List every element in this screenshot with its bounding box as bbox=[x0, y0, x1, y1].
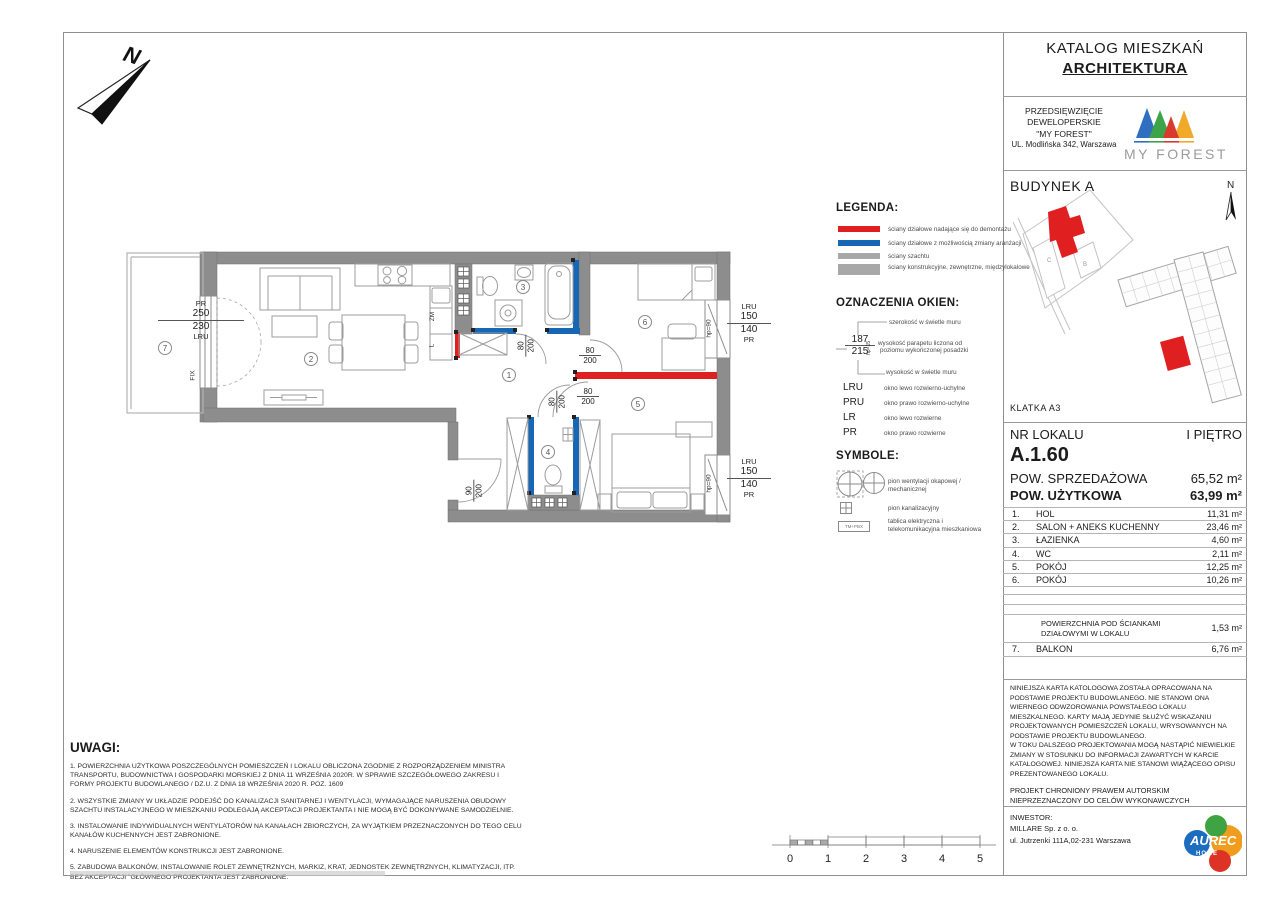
win5-height: 140 bbox=[727, 479, 771, 491]
abbr-lru: LRU bbox=[843, 382, 863, 393]
site-letter-c: C bbox=[1047, 258, 1052, 264]
window-sill-label2: poziomu wykończonej posadzki bbox=[880, 347, 968, 355]
room-number-1: 1 bbox=[502, 368, 516, 382]
usable-area-value: 63,99 m² bbox=[1160, 488, 1242, 503]
window-label-room6: LRU 150 140 PR bbox=[727, 302, 771, 344]
legend-swatch-red bbox=[838, 226, 880, 232]
aurec-logo-text: AUREC bbox=[1189, 833, 1237, 848]
sewage-symbol-label: pion kanalizacyjny bbox=[888, 505, 939, 513]
legend-title: LEGENDA: bbox=[836, 202, 898, 214]
door-dim-entrance: 90200 bbox=[464, 478, 483, 504]
divider-2 bbox=[1003, 170, 1247, 171]
site-north-letter: N bbox=[1227, 180, 1234, 191]
abbr-lr-desc: okno lewo rozwierne bbox=[884, 415, 941, 422]
sales-area-label: POW. SPRZEDAŻOWA bbox=[1010, 471, 1147, 486]
legend-swatch-shaft bbox=[838, 253, 880, 259]
developer-block: PRZEDSIĘWZIĘCIE DEWELOPERSKIE "MY FOREST… bbox=[1008, 106, 1120, 151]
sales-area-value: 65,52 m² bbox=[1160, 471, 1242, 486]
hp90-label-bottom: hp=90 bbox=[706, 474, 713, 492]
legend-swatch-structural bbox=[838, 264, 880, 275]
hp90-label-top: hp=90 bbox=[706, 319, 713, 337]
abbr-pru-desc: okno prawo rozwierno-uchylne bbox=[884, 400, 969, 407]
balcony-row: 7.BALKON6,76 m² bbox=[1003, 642, 1247, 656]
room-number-7: 7 bbox=[158, 341, 172, 355]
abbr-lr: LR bbox=[843, 412, 856, 423]
catalog-title: KATALOG MIESZKAŃ bbox=[1003, 40, 1247, 57]
uwagi-note-3: 3. INSTALOWANIE INDYWIDUALNYCH WENTYLATO… bbox=[70, 822, 525, 840]
site-letter-b: B bbox=[1083, 262, 1087, 268]
copyright: PROJEKT CHRONIONY PRAWEM AUTORSKIM NIEPR… bbox=[1010, 786, 1190, 806]
win6-type-bottom: PR bbox=[727, 335, 771, 344]
table-row: 1.HOL11,31 m² bbox=[1003, 507, 1247, 520]
door-dim-room5: 80200 bbox=[575, 387, 601, 406]
empty-row bbox=[1003, 594, 1247, 604]
abbr-pr: PR bbox=[843, 427, 857, 438]
win5-type-top: LRU bbox=[727, 457, 771, 466]
board-symbol-label: tablica elektryczna i telekomunikacyjna … bbox=[888, 518, 998, 534]
door-dim-bath: 80200 bbox=[516, 333, 535, 359]
empty-row bbox=[1003, 604, 1247, 614]
legend-swatch-blue bbox=[838, 240, 880, 246]
windows-legend-title: OZNACZENIA OKIEN: bbox=[836, 297, 960, 309]
scale-2: 2 bbox=[863, 853, 869, 865]
divider-1 bbox=[1003, 96, 1247, 97]
aurec-logo-home: HOME bbox=[1196, 851, 1218, 857]
legend-item-shaft: ściany szachtu bbox=[838, 253, 929, 261]
legend-item-blue: ściany działowe z możliwością zmiany ara… bbox=[838, 240, 1021, 248]
left-window-type-top: PR bbox=[158, 299, 244, 308]
unit-floor: I PIĘTRO bbox=[1130, 427, 1242, 442]
disclaimer: NINIEJSZA KARTA KATOLOGOWA ZOSTAŁA OPRAC… bbox=[1010, 684, 1242, 779]
door-dim-room6: 80200 bbox=[577, 346, 603, 365]
scale-1: 1 bbox=[825, 853, 831, 865]
dishwasher-label: ZM bbox=[429, 312, 436, 321]
table-row: 3.ŁAZIENKA4,60 m² bbox=[1003, 533, 1247, 546]
scale-4: 4 bbox=[939, 853, 945, 865]
my-forest-logo: MY FOREST bbox=[1122, 102, 1240, 164]
abbr-lru-desc: okno lewo rozwierno-uchylne bbox=[884, 385, 965, 392]
legend-item-structural: ściany konstrukcyjne, zewnętrzne, między… bbox=[838, 264, 1030, 275]
uwagi-note-4: 4. NARUSZENIE ELEMENTÓW KONSTRUKCJI JEST… bbox=[70, 847, 525, 856]
unit-number: A.1.60 bbox=[1010, 444, 1069, 467]
uwagi-notes: 1. POWIERZCHNIA UŻYTKOWA POSZCZEGÓLNYCH … bbox=[70, 762, 525, 889]
scale-0: 0 bbox=[787, 853, 793, 865]
empty-row bbox=[1003, 586, 1247, 594]
electric-board-icon: TM+PBX bbox=[838, 521, 870, 532]
aurec-home-logo: AUREC HOME bbox=[1182, 814, 1242, 872]
compass: N bbox=[72, 34, 192, 134]
vent-symbol-label: pion wentylacji okapowej / mechanicznej bbox=[888, 478, 988, 494]
catalog-subtitle: ARCHITEKTURA bbox=[1003, 60, 1247, 77]
room-number-4: 4 bbox=[541, 445, 555, 459]
uwagi-title: UWAGI: bbox=[70, 740, 120, 755]
usable-area-label: POW. UŻYTKOWA bbox=[1010, 488, 1122, 503]
room-number-6: 6 bbox=[638, 315, 652, 329]
window-height-label: wysokość w świetle muru bbox=[886, 369, 957, 377]
left-window-height: 230 bbox=[158, 321, 244, 333]
rooms-table: 1.HOL11,31 m² 2.SALON + ANEKS KUCHENNY23… bbox=[1003, 507, 1247, 666]
door-dim-wc: 80200 bbox=[547, 389, 566, 415]
empty-row bbox=[1003, 656, 1247, 666]
table-row: 4.WC2,11 m² bbox=[1003, 547, 1247, 560]
window-width-label: szerokość w świetle muru bbox=[889, 319, 961, 327]
scale-bar: 0 1 2 3 4 5 bbox=[770, 830, 1000, 866]
left-window-type-bottom: LRU bbox=[158, 332, 244, 341]
abbr-pr-desc: okno prawo rozwierne bbox=[884, 430, 946, 437]
fix-label: FIX bbox=[190, 370, 197, 380]
scale-3: 3 bbox=[901, 853, 907, 865]
room-number-2: 2 bbox=[304, 352, 318, 366]
divider-3 bbox=[1003, 422, 1247, 423]
vent-symbol-icon bbox=[836, 470, 888, 500]
win6-type-top: LRU bbox=[727, 302, 771, 311]
floor-plan-svg bbox=[112, 238, 752, 554]
window-label-room5: LRU 150 140 PR bbox=[727, 457, 771, 499]
divider-5 bbox=[1003, 806, 1247, 807]
scale-5: 5 bbox=[977, 853, 983, 865]
floor-plan bbox=[112, 238, 752, 554]
site-unit-highlight bbox=[1160, 336, 1191, 371]
investor-block: INWESTOR: MILLARE Sp. z o. o. ul. Jutrze… bbox=[1010, 812, 1131, 846]
uwagi-note-1: 1. POWIERZCHNIA UŻYTKOWA POSZCZEGÓLNYCH … bbox=[70, 762, 525, 790]
win5-width: 150 bbox=[727, 466, 771, 479]
room-number-3: 3 bbox=[516, 280, 530, 294]
win5-type-bottom: PR bbox=[727, 490, 771, 499]
partition-row: POWIERZCHNIA POD ŚCIANKAMI DZIAŁOWYMI W … bbox=[1003, 614, 1247, 642]
north-arrow-icon: N bbox=[72, 34, 192, 134]
klatka-label: KLATKA A3 bbox=[1010, 403, 1061, 413]
left-window-width: 250 bbox=[158, 308, 244, 321]
unit-number-label: NR LOKALU bbox=[1010, 427, 1084, 442]
site-plan: N B C bbox=[1005, 172, 1245, 420]
fridge-label: L bbox=[428, 344, 435, 348]
sewage-symbol-icon bbox=[840, 502, 852, 514]
cut-off-text bbox=[70, 871, 385, 876]
window-example-hp: hp=15 bbox=[866, 341, 872, 355]
abbr-pru: PRU bbox=[843, 397, 864, 408]
table-row: 6.POKÓJ10,26 m² bbox=[1003, 573, 1247, 586]
symbols-title: SYMBOLE: bbox=[836, 450, 899, 462]
uwagi-note-2: 2. WSZYSTKIE ZMIANY W UKŁADZIE PODEJŚĆ D… bbox=[70, 797, 525, 815]
room-number-5: 5 bbox=[631, 397, 645, 411]
my-forest-logo-text: MY FOREST bbox=[1124, 146, 1228, 162]
divider-4 bbox=[1003, 679, 1247, 680]
left-window-label: PR 250 230 LRU bbox=[158, 299, 244, 341]
win6-width: 150 bbox=[727, 311, 771, 324]
table-row: 5.POKÓJ12,25 m² bbox=[1003, 560, 1247, 573]
table-row: 2.SALON + ANEKS KUCHENNY23,46 m² bbox=[1003, 520, 1247, 533]
legend-item-red: ściany działowe nadające się do demontaż… bbox=[838, 226, 1011, 234]
panel-divider bbox=[1003, 32, 1004, 876]
win6-height: 140 bbox=[727, 324, 771, 336]
